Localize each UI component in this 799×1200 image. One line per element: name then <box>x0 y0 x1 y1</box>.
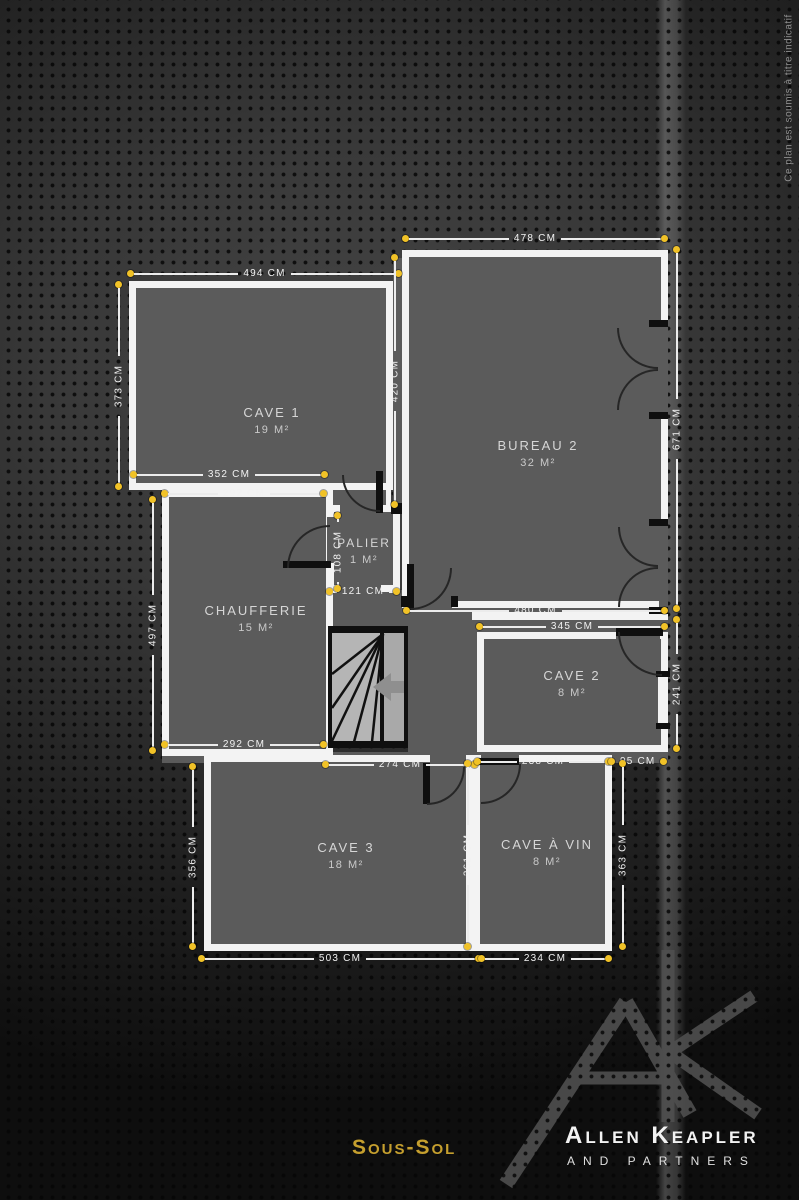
staircase-overlay <box>0 0 799 1200</box>
floorplan-poster: Ce plan est soumis à titre indicatif <box>0 0 799 1200</box>
